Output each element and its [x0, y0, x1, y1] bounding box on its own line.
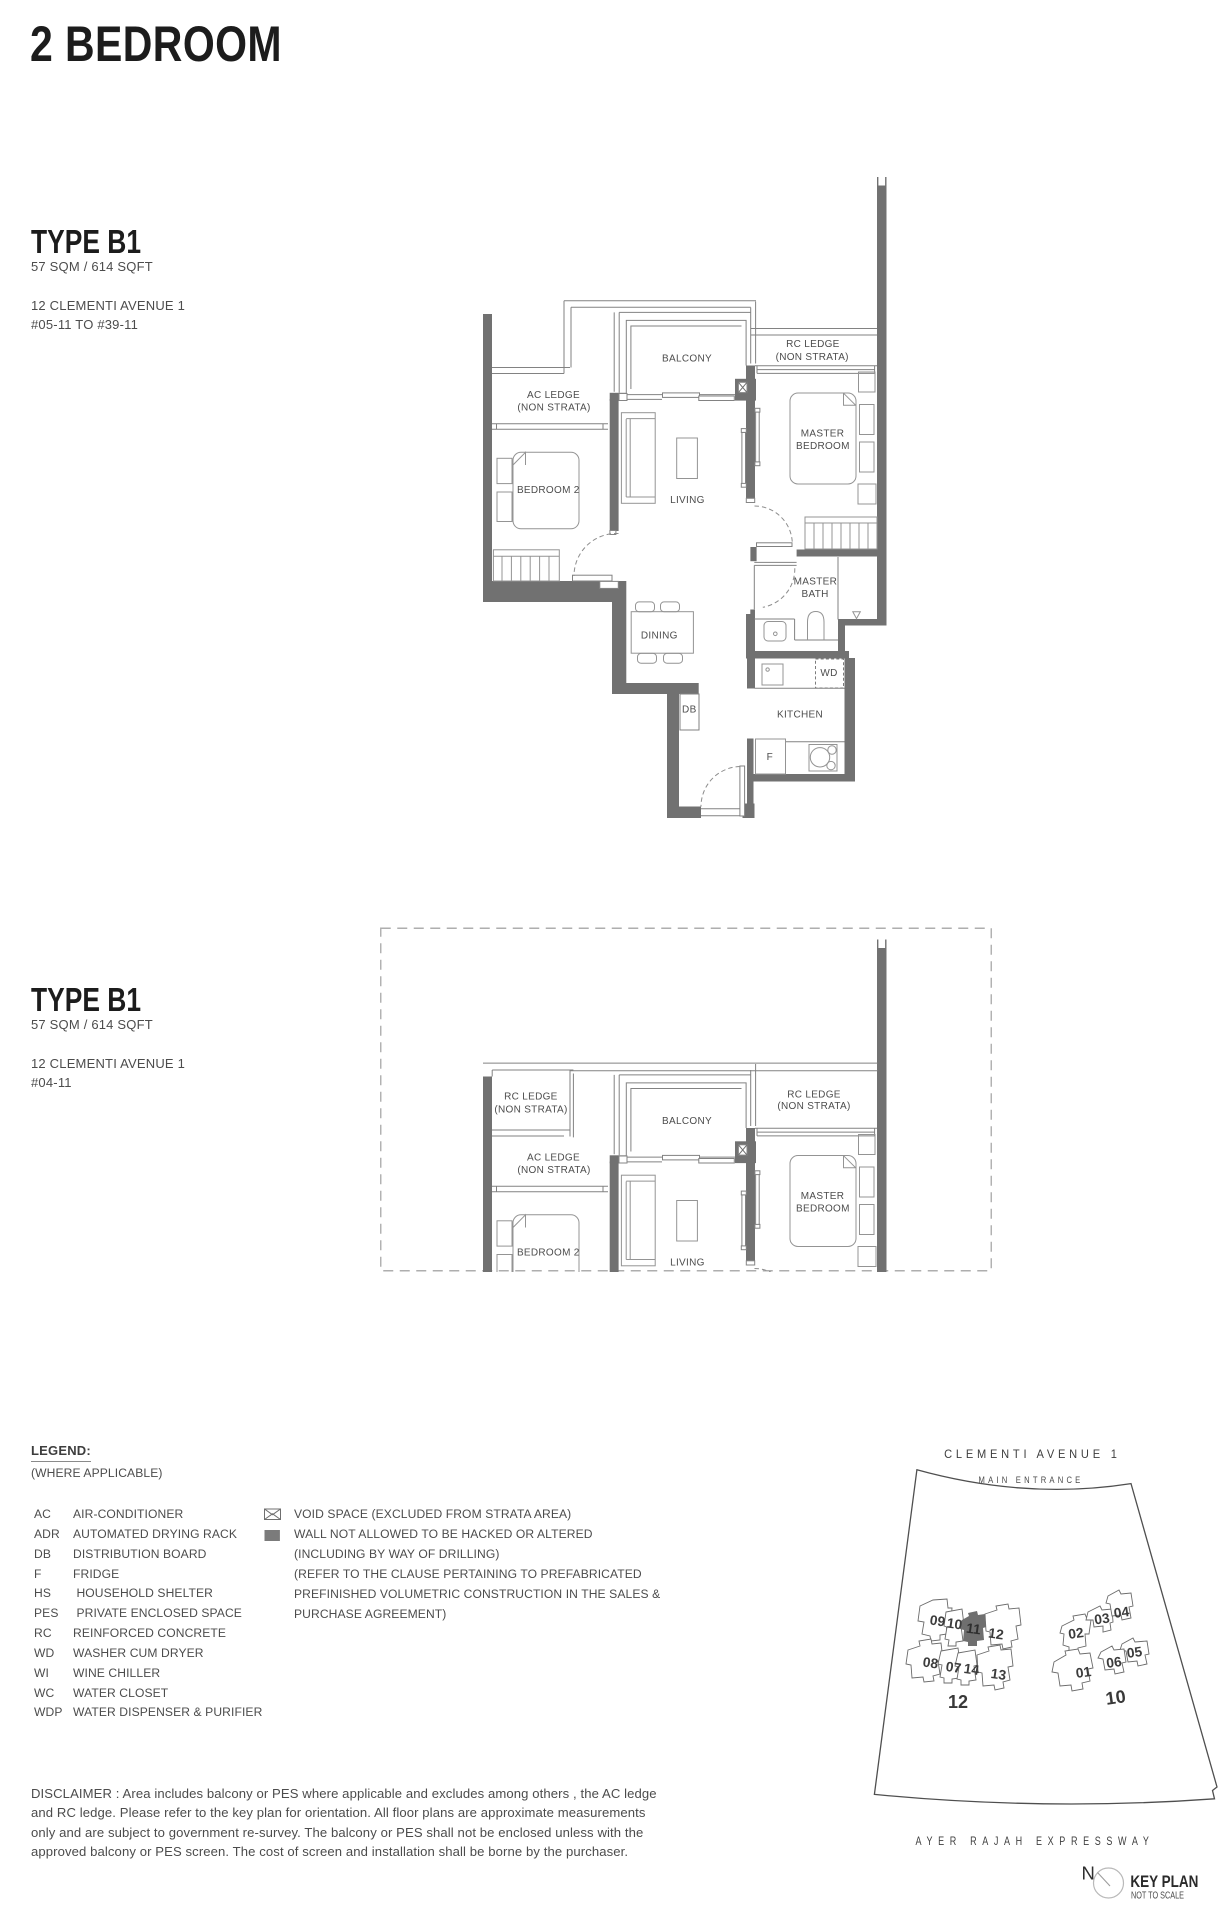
- svg-text:(NON STRATA): (NON STRATA): [777, 1101, 850, 1112]
- svg-text:12: 12: [948, 1692, 968, 1712]
- svg-text:08: 08: [922, 1655, 940, 1672]
- svg-text:07: 07: [945, 1659, 963, 1676]
- svg-text:10: 10: [1104, 1686, 1127, 1709]
- svg-text:(NON STRATA): (NON STRATA): [494, 1104, 567, 1115]
- svg-text:11: 11: [965, 1621, 982, 1638]
- svg-text:02: 02: [1067, 1625, 1085, 1642]
- svg-text:01: 01: [1075, 1664, 1093, 1681]
- svg-text:NOT TO SCALE: NOT TO SCALE: [1131, 1890, 1184, 1902]
- svg-text:09: 09: [929, 1613, 947, 1630]
- svg-text:05: 05: [1126, 1644, 1144, 1661]
- svg-text:AYER RAJAH EXPRESSWAY: AYER RAJAH EXPRESSWAY: [916, 1834, 1155, 1848]
- svg-text:KEY PLAN: KEY PLAN: [1130, 1873, 1198, 1891]
- svg-text:10: 10: [946, 1616, 964, 1633]
- svg-text:04: 04: [1113, 1604, 1131, 1621]
- svg-text:12: 12: [987, 1626, 1005, 1643]
- svg-text:13: 13: [990, 1666, 1008, 1683]
- svg-text:(NON STRATA): (NON STRATA): [776, 352, 849, 363]
- svg-text:RC LEDGE: RC LEDGE: [504, 1092, 558, 1103]
- svg-text:RC LEDGE: RC LEDGE: [787, 1090, 841, 1101]
- svg-text:06: 06: [1105, 1654, 1123, 1671]
- svg-text:RC LEDGE: RC LEDGE: [786, 339, 840, 350]
- svg-text:03: 03: [1093, 1610, 1111, 1627]
- svg-text:14: 14: [963, 1661, 981, 1678]
- svg-text:CLEMENTI AVENUE 1: CLEMENTI AVENUE 1: [944, 1449, 1121, 1461]
- svg-text:N: N: [1082, 1863, 1095, 1884]
- svg-text:MAIN ENTRANCE: MAIN ENTRANCE: [979, 1475, 1084, 1486]
